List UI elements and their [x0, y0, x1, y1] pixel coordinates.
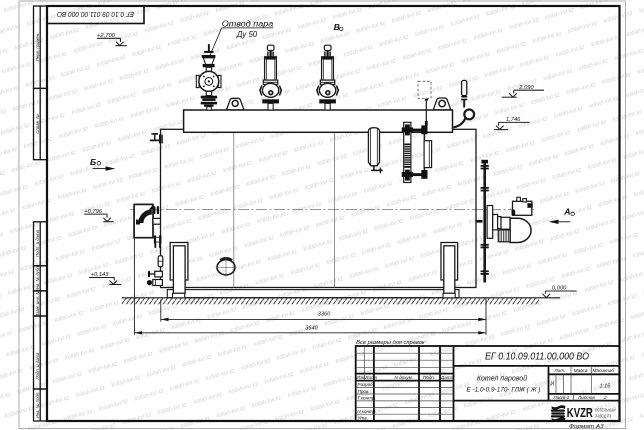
svg-text:Подп. и дата: Подп. и дата	[35, 229, 40, 257]
svg-text:Формат А3: Формат А3	[569, 424, 605, 430]
svg-text:KVZR: KVZR	[567, 405, 593, 420]
svg-text:1:15: 1:15	[600, 384, 612, 390]
svg-text:Н.контр.: Н.контр.	[357, 409, 376, 414]
svg-text:Дата: Дата	[440, 375, 454, 380]
svg-text:3360: 3360	[318, 311, 331, 317]
svg-text:Инв. № подл.: Инв. № подл.	[35, 392, 40, 419]
svg-text:А: А	[563, 207, 570, 217]
svg-text:В: В	[334, 22, 340, 32]
svg-text:ЗАВОД РЗ: ЗАВОД РЗ	[595, 413, 611, 418]
svg-text:N докум.: N докум.	[395, 375, 414, 380]
svg-text:Ду 50: Ду 50	[236, 30, 258, 39]
svg-text:Лист 1: Лист 1	[553, 395, 570, 400]
svg-text:Листов: Листов	[577, 395, 595, 400]
svg-text:Т.контр.: Т.контр.	[357, 396, 376, 401]
svg-text:ЕГ 0.10.09.011.00.000 ВО: ЕГ 0.10.09.011.00.000 ВО	[485, 351, 589, 363]
svg-text:Отвод пара: Отвод пара	[222, 20, 274, 29]
svg-text:Перв. примен.: Перв. примен.	[35, 33, 40, 62]
svg-text:Инв. № дубл.: Инв. № дубл.	[35, 265, 40, 291]
svg-text:Котел паровой: Котел паровой	[477, 375, 527, 383]
svg-text:2: 2	[603, 395, 607, 400]
svg-text:Лист: Лист	[364, 375, 377, 380]
svg-text:3640: 3640	[305, 326, 318, 332]
svg-text:Подп.: Подп.	[423, 375, 435, 380]
svg-text:ЕГ 0.10.09.011.00.000 ВО: ЕГ 0.10.09.011.00.000 ВО	[57, 10, 134, 19]
svg-text:Утв.: Утв.	[358, 416, 368, 421]
svg-text:Б: Б	[90, 157, 96, 167]
svg-text:Справ. №: Справ. №	[35, 114, 40, 134]
svg-text:Лит.: Лит.	[554, 368, 566, 373]
svg-text:КОТЕЛЬНЫЙ: КОТЕЛЬНЫЙ	[595, 407, 616, 412]
svg-text:Е -1,0-0,9-170- ГЛЖ ( Ж ): Е -1,0-0,9-170- ГЛЖ ( Ж )	[466, 386, 540, 393]
svg-text:Пров.: Пров.	[358, 389, 370, 394]
svg-text:Взам. инв. №: Взам. инв. №	[35, 290, 40, 317]
svg-text:Масштаб: Масштаб	[593, 368, 615, 373]
svg-text:Все размеры для справок: Все размеры для справок	[356, 340, 425, 346]
svg-text:И: И	[550, 382, 554, 388]
svg-text:Разраб.: Разраб.	[358, 382, 375, 387]
svg-text:Подп. и дата: Подп. и дата	[35, 352, 40, 380]
svg-text:Масса: Масса	[574, 368, 588, 373]
